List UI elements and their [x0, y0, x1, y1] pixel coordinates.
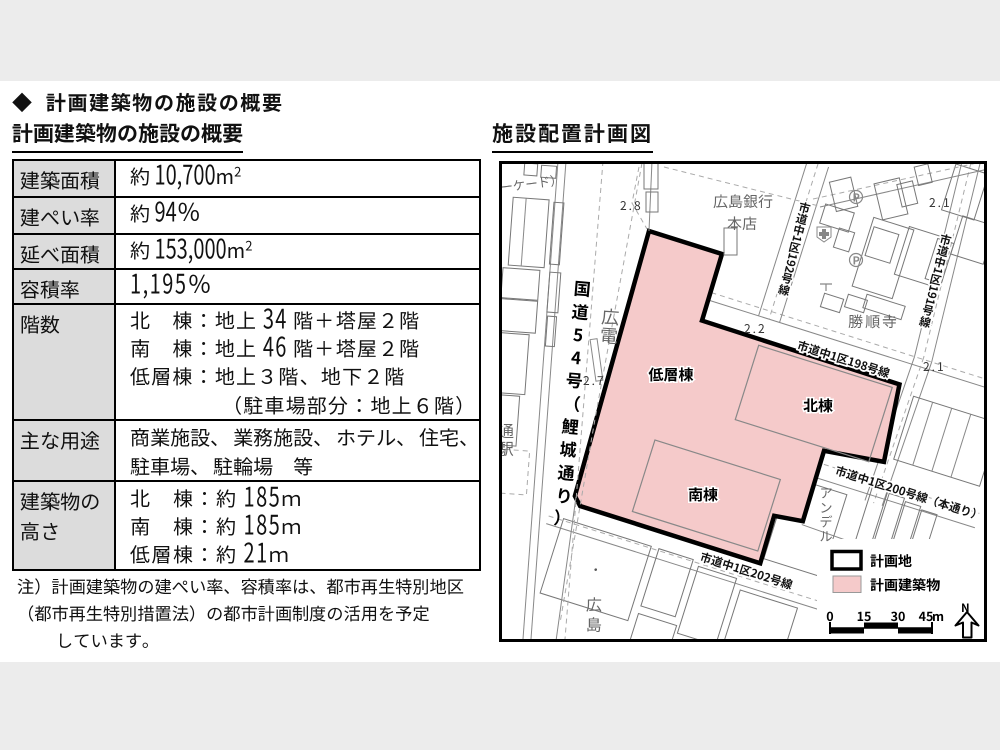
svg-text:アンデル: アンデル	[817, 486, 836, 544]
svg-text:低層棟: 低層棟	[648, 364, 693, 385]
svg-text:計画建築物: 計画建築物	[870, 575, 940, 595]
svg-text:広島銀行: 広島銀行	[713, 191, 773, 212]
svg-text:2.1: 2.1	[923, 358, 946, 375]
svg-text:P: P	[853, 190, 860, 206]
svg-text:2.1: 2.1	[929, 194, 952, 211]
svg-text:南棟: 南棟	[688, 484, 718, 505]
svg-text:2.7: 2.7	[583, 372, 606, 389]
svg-text:m: m	[932, 606, 944, 625]
svg-text:2.2: 2.2	[744, 320, 767, 337]
svg-text:広電: 広電	[595, 306, 624, 346]
svg-text:P: P	[853, 253, 860, 269]
svg-text:計画地: 計画地	[870, 551, 912, 571]
svg-text:15: 15	[857, 606, 872, 625]
svg-text:2.8: 2.8	[620, 197, 643, 214]
svg-text:広島: 広島	[582, 597, 606, 635]
svg-text:30: 30	[891, 606, 906, 625]
svg-text:本店: 本店	[727, 213, 757, 234]
svg-text:勝順寺: 勝順寺	[848, 311, 899, 332]
svg-text:北棟: 北棟	[803, 395, 833, 416]
